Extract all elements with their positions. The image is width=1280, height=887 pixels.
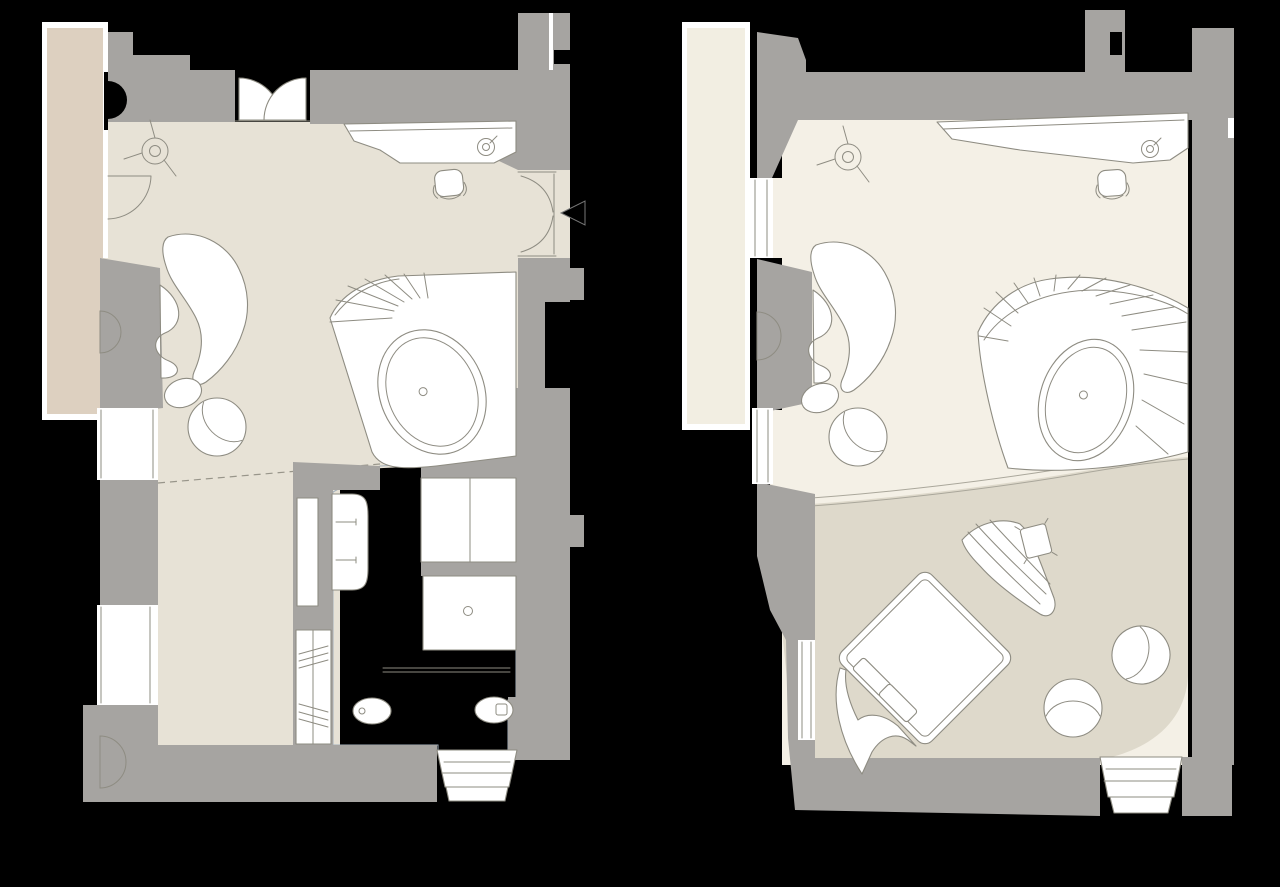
wall-bottom-right xyxy=(1182,757,1232,816)
wall-right-low xyxy=(516,388,570,760)
wall-top-right xyxy=(310,70,518,124)
round-armchair-2 xyxy=(1044,679,1102,737)
wall-right xyxy=(1192,28,1234,765)
window-2 xyxy=(752,408,773,484)
wall-top-left xyxy=(108,70,235,122)
wardrobe-with-rail xyxy=(296,630,331,744)
round-armchair-2-shape xyxy=(1044,679,1102,737)
window-dressing xyxy=(97,605,158,705)
wall-right-bump-2 xyxy=(570,515,584,547)
storage-cabinet xyxy=(297,498,318,606)
floor-plan-stage xyxy=(0,0,1280,887)
wall-joint-line xyxy=(549,13,553,70)
wall-left-dressing xyxy=(100,478,158,605)
bay-window xyxy=(437,750,517,801)
window-3 xyxy=(798,640,815,740)
terrace-floor xyxy=(687,28,745,424)
bay-window-sill xyxy=(446,787,508,801)
shower xyxy=(423,576,516,650)
wall-left-mid xyxy=(757,259,812,414)
bay-window-sill xyxy=(1110,797,1172,813)
bidet xyxy=(475,697,513,723)
tall-cabinet xyxy=(421,478,516,562)
wall-right-bump-1 xyxy=(570,268,584,300)
wall-joint-line xyxy=(1228,118,1234,138)
wall-right-strip xyxy=(518,302,545,388)
wall-gap xyxy=(104,72,108,130)
wall-right-mid xyxy=(518,258,570,302)
spiral-stair xyxy=(978,275,1188,473)
toilet xyxy=(353,698,391,724)
floor-plan-canvas xyxy=(0,0,1280,887)
wall-left-living xyxy=(100,258,163,415)
wall-notch xyxy=(1110,32,1122,55)
wall-top-band xyxy=(798,72,1192,120)
wall-sliver-mid-bath xyxy=(421,562,516,576)
bay-window-outer xyxy=(1100,757,1182,797)
bay-window xyxy=(1100,757,1182,813)
vanity-basin xyxy=(332,494,368,590)
window-1 xyxy=(750,178,773,258)
wall-notch xyxy=(554,50,570,64)
window-living xyxy=(97,408,158,480)
terrace-floor xyxy=(47,28,103,414)
bay-window-outer xyxy=(437,750,517,787)
wall-right-top xyxy=(518,13,570,170)
entry-threshold-floor xyxy=(514,170,570,258)
